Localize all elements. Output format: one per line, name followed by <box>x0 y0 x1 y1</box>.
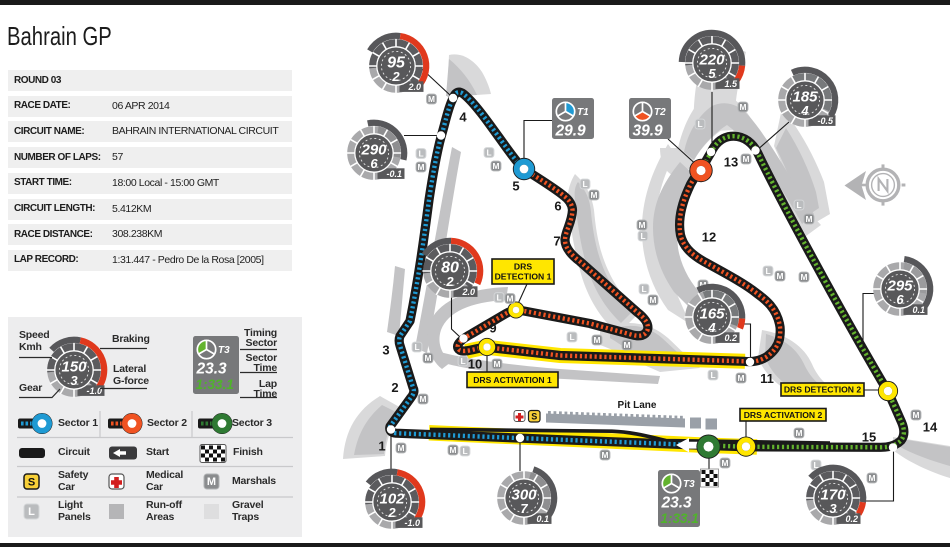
svg-text:2: 2 <box>387 505 396 520</box>
svg-text:15: 15 <box>862 430 876 445</box>
svg-text:M: M <box>428 94 435 104</box>
svg-text:S: S <box>531 412 537 422</box>
svg-text:L: L <box>418 149 423 159</box>
svg-text:M: M <box>602 450 609 460</box>
svg-text:0.1: 0.1 <box>912 305 925 315</box>
svg-text:3: 3 <box>70 373 78 388</box>
svg-text:M: M <box>639 220 646 230</box>
svg-text:13: 13 <box>724 155 738 170</box>
svg-text:L: L <box>460 356 465 366</box>
svg-text:39.9: 39.9 <box>633 123 664 140</box>
svg-text:29.9: 29.9 <box>555 123 587 140</box>
svg-text:0.2: 0.2 <box>845 514 858 524</box>
svg-text:DRS ACTIVATION 1: DRS ACTIVATION 1 <box>473 375 552 385</box>
svg-text:4: 4 <box>800 103 809 118</box>
svg-text:T2: T2 <box>654 107 666 118</box>
svg-text:M: M <box>420 394 427 404</box>
svg-text:L: L <box>496 293 501 303</box>
svg-text:M: M <box>869 473 876 483</box>
svg-text:1:33.1: 1:33.1 <box>196 377 234 392</box>
svg-text:L: L <box>641 284 646 294</box>
svg-text:M: M <box>740 102 747 112</box>
svg-text:L: L <box>486 148 491 158</box>
svg-text:-0.1: -0.1 <box>386 169 402 179</box>
svg-text:0.1: 0.1 <box>536 514 549 524</box>
svg-text:M: M <box>796 428 803 438</box>
svg-text:M: M <box>624 340 631 350</box>
svg-text:-0.5: -0.5 <box>817 116 834 126</box>
svg-text:6: 6 <box>896 292 904 307</box>
svg-text:M: M <box>722 458 729 468</box>
svg-text:7: 7 <box>520 501 528 516</box>
svg-text:M: M <box>777 271 784 281</box>
svg-text:L: L <box>697 119 702 129</box>
svg-text:M: M <box>594 335 601 345</box>
svg-text:M: M <box>494 359 501 369</box>
svg-text:9: 9 <box>489 321 496 336</box>
svg-text:3: 3 <box>829 501 837 516</box>
svg-text:2: 2 <box>391 69 400 84</box>
svg-text:2: 2 <box>445 274 454 289</box>
svg-text:M: M <box>425 353 432 363</box>
svg-text:M: M <box>493 161 500 171</box>
svg-text:-1.0: -1.0 <box>404 518 420 528</box>
svg-text:M: M <box>650 295 657 305</box>
svg-text:1:33.1: 1:33.1 <box>661 511 699 526</box>
svg-text:M: M <box>450 445 457 455</box>
svg-text:L: L <box>582 179 587 189</box>
svg-text:M: M <box>738 373 745 383</box>
svg-text:L: L <box>640 231 645 241</box>
svg-text:23.3: 23.3 <box>196 361 228 378</box>
svg-text:1: 1 <box>378 439 385 454</box>
svg-text:M: M <box>913 410 920 420</box>
svg-text:DRS ACTIVATION 2: DRS ACTIVATION 2 <box>744 410 823 420</box>
svg-text:4: 4 <box>459 110 467 125</box>
svg-text:1.5: 1.5 <box>724 79 738 89</box>
svg-text:DETECTION 1: DETECTION 1 <box>495 272 552 282</box>
svg-text:3: 3 <box>382 343 389 358</box>
svg-text:0.2: 0.2 <box>724 333 737 343</box>
svg-text:6: 6 <box>370 156 378 171</box>
svg-text:L: L <box>569 332 574 342</box>
svg-text:23.3: 23.3 <box>661 495 693 512</box>
svg-text:L: L <box>28 506 35 518</box>
svg-text:DRS: DRS <box>514 262 532 272</box>
svg-text:T1: T1 <box>577 107 589 118</box>
svg-text:11: 11 <box>760 371 774 386</box>
svg-text:2: 2 <box>391 380 398 395</box>
svg-text:S: S <box>28 477 35 489</box>
svg-text:L: L <box>765 266 770 276</box>
svg-text:4: 4 <box>707 320 716 335</box>
svg-text:M: M <box>743 154 750 164</box>
svg-text:5: 5 <box>708 66 716 81</box>
svg-text:M: M <box>207 476 216 488</box>
svg-text:14: 14 <box>923 420 938 435</box>
svg-text:T3: T3 <box>683 479 695 490</box>
svg-text:DRS DETECTION 2: DRS DETECTION 2 <box>784 385 862 395</box>
svg-text:12: 12 <box>702 230 716 245</box>
svg-text:2.0: 2.0 <box>461 287 475 297</box>
svg-text:T3: T3 <box>218 345 230 356</box>
svg-text:6: 6 <box>554 199 561 214</box>
svg-text:2.0: 2.0 <box>407 82 421 92</box>
svg-text:L: L <box>796 200 801 210</box>
svg-text:M: M <box>418 162 425 172</box>
svg-text:L: L <box>710 370 715 380</box>
svg-text:M: M <box>507 294 514 304</box>
svg-text:M: M <box>806 214 813 224</box>
svg-text:10: 10 <box>468 357 482 372</box>
svg-text:7: 7 <box>553 234 560 249</box>
svg-text:-1.0: -1.0 <box>86 386 102 396</box>
svg-text:M: M <box>591 190 598 200</box>
svg-text:M: M <box>801 272 808 282</box>
svg-text:Pit Lane: Pit Lane <box>618 400 657 411</box>
svg-text:L: L <box>414 342 419 352</box>
svg-text:5: 5 <box>512 179 519 194</box>
svg-text:L: L <box>462 446 467 456</box>
svg-text:M: M <box>398 443 405 453</box>
